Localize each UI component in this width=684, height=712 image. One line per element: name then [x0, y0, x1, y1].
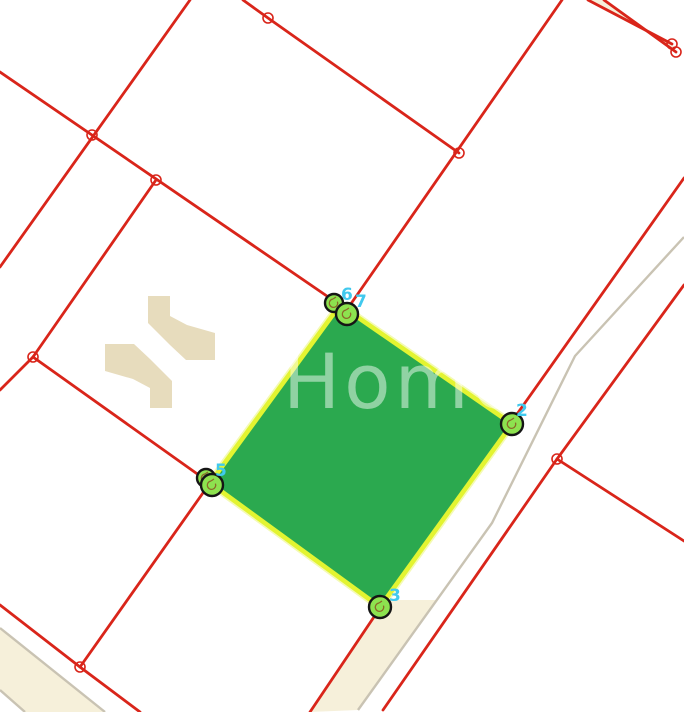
logo-chevron-shape: [105, 344, 172, 408]
logo-watermark: [105, 296, 215, 408]
topright-road-edge-lower: [604, 0, 676, 52]
vertex-number-label: 3: [389, 586, 401, 606]
vertex-number-label: 2: [516, 401, 528, 421]
brand-watermark-text: Home: [283, 337, 523, 426]
cadastral-map: Home 67235: [0, 0, 684, 712]
boundary-ne-long: [348, 0, 562, 308]
boundary-nw-long: [0, 72, 340, 305]
boundary-topleft-steep: [0, 0, 190, 267]
logo-chevron-shape: [148, 296, 215, 360]
branch-southeast: [557, 459, 684, 541]
boundary-j2-j3: [33, 180, 156, 357]
boundary-top-d: [243, 0, 459, 153]
topright-road-edge-upper: [588, 0, 672, 44]
vertex-number-label: 7: [355, 292, 367, 312]
boundary-j3-west: [0, 357, 33, 390]
brand-watermark: Home: [283, 337, 523, 426]
vertex-number-label: 6: [341, 285, 353, 305]
vertex-marker[interactable]: [369, 596, 391, 618]
map-canvas[interactable]: Home 67235: [0, 0, 684, 712]
vertex-number-label: 5: [215, 461, 227, 481]
boundary-v5-j6: [80, 483, 210, 667]
boundary-j3-v5: [33, 357, 210, 483]
